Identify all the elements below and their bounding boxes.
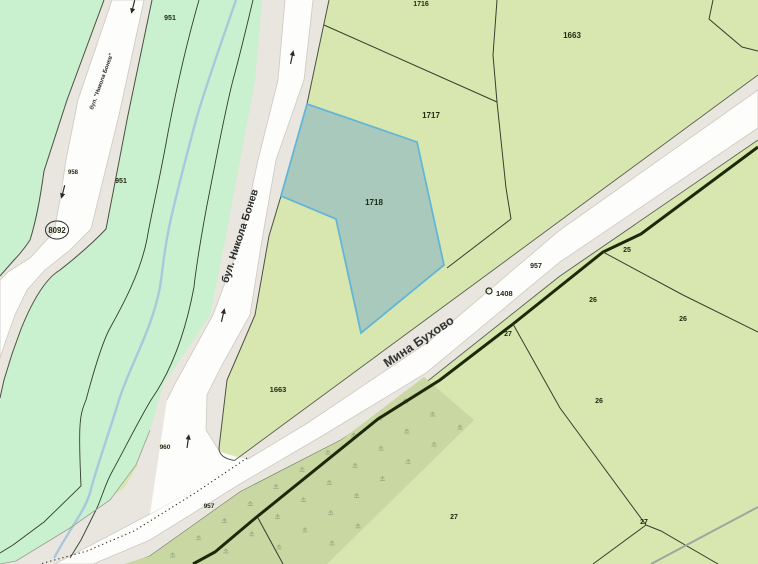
svg-text:1717: 1717 bbox=[422, 111, 440, 120]
svg-text:8092: 8092 bbox=[48, 226, 66, 235]
svg-text:1663: 1663 bbox=[270, 385, 287, 394]
svg-text:26: 26 bbox=[589, 297, 597, 304]
svg-text:1408: 1408 bbox=[496, 289, 513, 298]
svg-text:958: 958 bbox=[68, 170, 79, 176]
svg-text:1716: 1716 bbox=[413, 1, 429, 8]
svg-text:1718: 1718 bbox=[365, 198, 383, 207]
svg-text:27: 27 bbox=[504, 331, 512, 338]
svg-text:26: 26 bbox=[679, 316, 687, 323]
svg-text:957: 957 bbox=[530, 263, 542, 270]
svg-text:27: 27 bbox=[640, 519, 648, 526]
svg-text:25: 25 bbox=[623, 247, 631, 254]
svg-text:27: 27 bbox=[450, 514, 458, 521]
svg-text:957: 957 bbox=[204, 503, 215, 510]
svg-text:960: 960 bbox=[160, 444, 171, 451]
svg-text:1663: 1663 bbox=[563, 31, 581, 40]
svg-text:26: 26 bbox=[595, 398, 603, 405]
svg-text:951: 951 bbox=[164, 15, 176, 22]
svg-text:951: 951 bbox=[115, 178, 127, 185]
